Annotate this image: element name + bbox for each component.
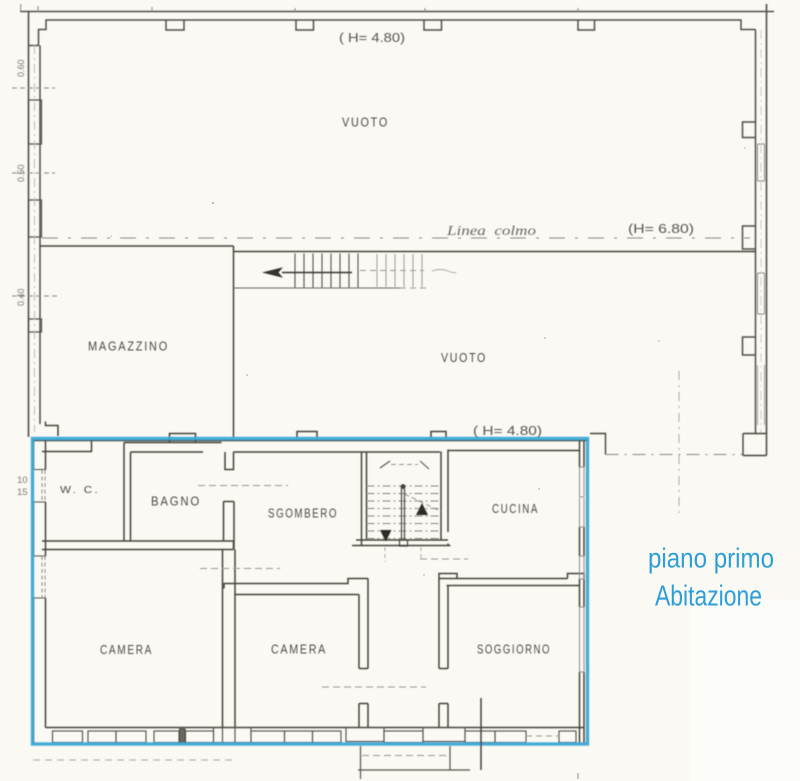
svg-text:( H= 4.80): ( H= 4.80)	[473, 424, 542, 438]
svg-text:0.40: 0.40	[16, 288, 26, 306]
svg-text:W. C.: W. C.	[60, 485, 100, 496]
svg-text:( H= 4.80): ( H= 4.80)	[339, 31, 405, 45]
svg-text:VUOTO: VUOTO	[441, 351, 487, 365]
svg-text:10: 10	[17, 475, 28, 486]
svg-text:CUCINA: CUCINA	[492, 502, 539, 516]
svg-text:piano primo: piano primo	[648, 543, 774, 574]
svg-text:MAGAZZINO: MAGAZZINO	[88, 340, 169, 354]
svg-text:SGOMBERO: SGOMBERO	[268, 507, 338, 521]
svg-text:0.60: 0.60	[16, 59, 26, 77]
svg-text:SOGGIORNO: SOGGIORNO	[477, 643, 551, 657]
svg-text:VUOTO: VUOTO	[342, 116, 389, 130]
svg-text:Abitazione: Abitazione	[655, 581, 762, 613]
svg-text:CAMERA: CAMERA	[100, 643, 153, 657]
svg-text:0.50: 0.50	[16, 164, 26, 182]
svg-text:CAMERA: CAMERA	[271, 643, 327, 657]
svg-text:Linea colmo: Linea colmo	[446, 223, 537, 238]
svg-text:BAGNO: BAGNO	[151, 495, 201, 509]
svg-text:(H= 6.80): (H= 6.80)	[628, 222, 694, 236]
svg-text:15: 15	[17, 487, 28, 498]
